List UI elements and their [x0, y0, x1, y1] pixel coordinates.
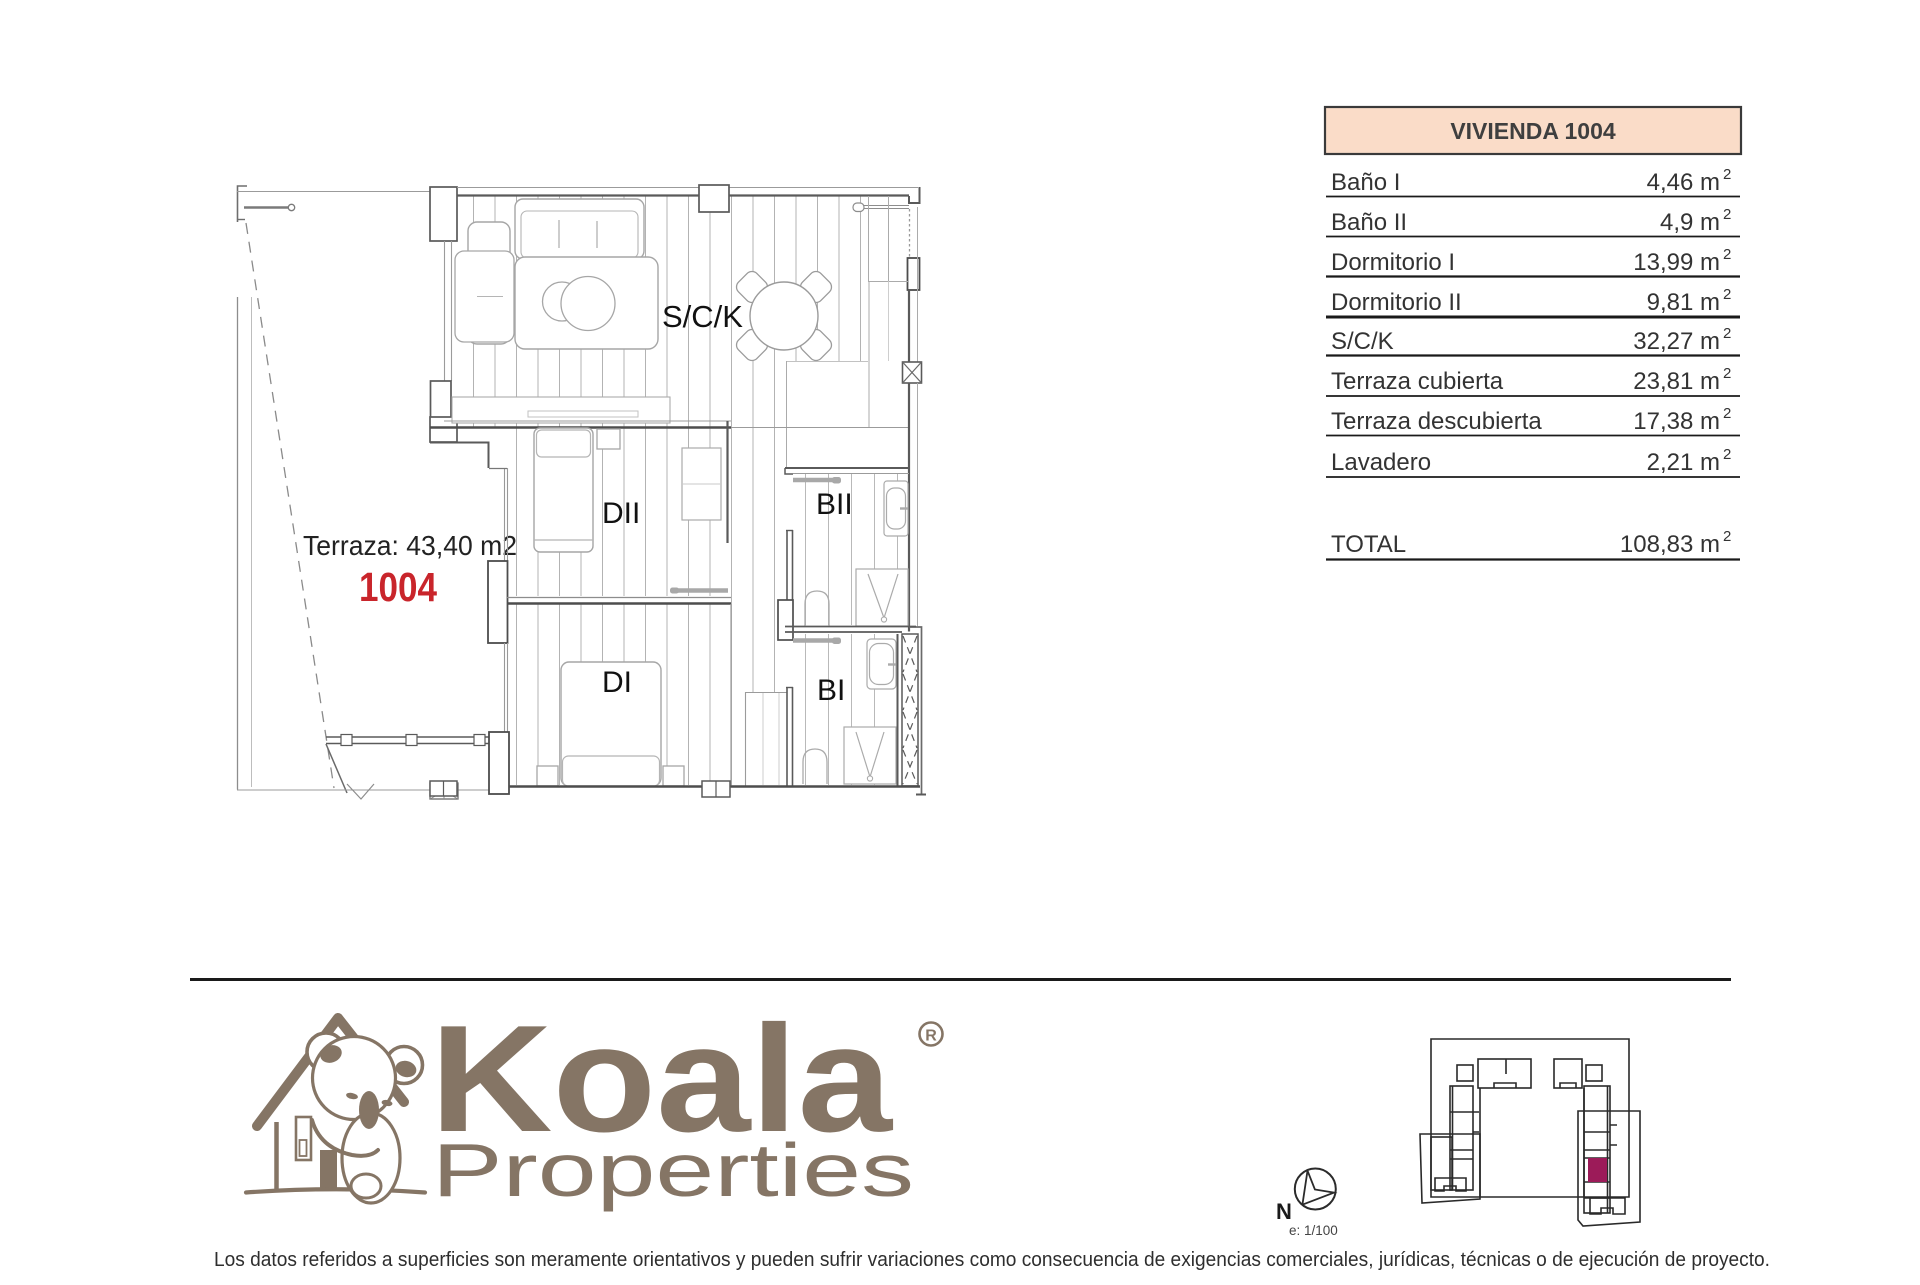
svg-text:DII: DII — [602, 497, 640, 530]
svg-text:4,46 m: 4,46 m — [1647, 169, 1720, 196]
svg-text:TOTAL: TOTAL — [1331, 531, 1406, 558]
svg-text:Baño II: Baño II — [1331, 209, 1407, 236]
svg-text:4,9 m: 4,9 m — [1660, 209, 1720, 236]
svg-text:Baño I: Baño I — [1331, 169, 1400, 196]
svg-text:Los datos referidos a superfic: Los datos referidos a superficies son me… — [214, 1249, 1770, 1271]
svg-text:DI: DI — [602, 666, 632, 699]
svg-text:Dormitorio II: Dormitorio II — [1331, 289, 1462, 316]
svg-text:Terraza: 43,40 m2: Terraza: 43,40 m2 — [303, 530, 517, 561]
svg-text:1004: 1004 — [359, 564, 437, 610]
svg-text:2: 2 — [1723, 325, 1731, 342]
svg-text:e: 1/100: e: 1/100 — [1289, 1223, 1338, 1238]
svg-text:Terraza cubierta: Terraza cubierta — [1331, 368, 1504, 395]
svg-text:32,27 m: 32,27 m — [1633, 328, 1720, 355]
svg-text:2: 2 — [1723, 206, 1731, 223]
svg-text:23,81 m: 23,81 m — [1633, 368, 1720, 395]
svg-text:2: 2 — [1723, 446, 1731, 463]
svg-text:R: R — [925, 1028, 937, 1045]
svg-text:108,83 m: 108,83 m — [1620, 531, 1720, 558]
svg-text:Properties: Properties — [432, 1128, 914, 1212]
svg-text:N: N — [1276, 1199, 1292, 1224]
svg-text:Terraza descubierta: Terraza descubierta — [1331, 408, 1542, 435]
svg-text:Lavadero: Lavadero — [1331, 449, 1431, 476]
svg-text:13,99 m: 13,99 m — [1633, 249, 1720, 276]
svg-text:2: 2 — [1723, 246, 1731, 263]
svg-text:2,21 m: 2,21 m — [1647, 449, 1720, 476]
svg-text:17,38 m: 17,38 m — [1633, 408, 1720, 435]
svg-text:2: 2 — [1723, 166, 1731, 183]
svg-text:2: 2 — [1723, 286, 1731, 303]
svg-text:VIVIENDA 1004: VIVIENDA 1004 — [1450, 118, 1616, 144]
svg-text:Dormitorio I: Dormitorio I — [1331, 249, 1455, 276]
svg-text:2: 2 — [1723, 528, 1731, 545]
svg-text:9,81 m: 9,81 m — [1647, 289, 1720, 316]
svg-text:2: 2 — [1723, 405, 1731, 422]
svg-text:BII: BII — [816, 488, 853, 521]
svg-text:BI: BI — [817, 674, 845, 707]
svg-text:S/C/K: S/C/K — [662, 299, 743, 334]
svg-text:2: 2 — [1723, 365, 1731, 382]
svg-text:S/C/K: S/C/K — [1331, 328, 1394, 355]
